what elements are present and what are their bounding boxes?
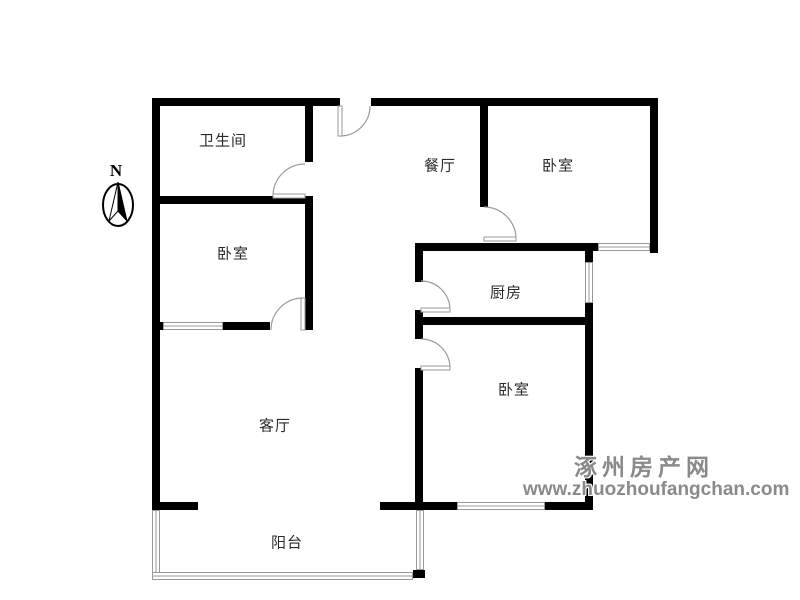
balcony-rail-left (153, 511, 160, 580)
floor-plan: N 卫生间 餐厅 卧室 卧室 厨房 卧室 客厅 阳台 涿州房产网 www.zhu… (0, 0, 800, 600)
wall-segment (223, 322, 270, 330)
room-label-bedroom-top-right: 卧室 (542, 155, 574, 176)
wall-segment (415, 243, 423, 282)
room-label-bedroom-bottom-right: 卧室 (498, 379, 530, 400)
north-label: N (110, 161, 122, 181)
wall-segment (305, 196, 313, 330)
wall-segment (415, 317, 593, 325)
window-top-right (599, 244, 650, 251)
window-bedroom-bottom (458, 503, 545, 510)
wall-segment (152, 322, 163, 330)
room-label-dining-room: 餐厅 (424, 155, 456, 176)
walls-layer (152, 98, 658, 578)
bedroom-top-right-door (484, 207, 516, 241)
room-label-living-room: 客厅 (259, 415, 291, 436)
window-bedroom-left (164, 323, 223, 330)
wall-segment (585, 251, 593, 262)
floor-plan-drawing (0, 0, 800, 600)
wall-segment (480, 98, 488, 207)
wall-segment (650, 98, 658, 253)
wall-segment (371, 98, 658, 106)
room-label-bedroom-left: 卧室 (217, 243, 249, 264)
kitchen-door (421, 281, 450, 312)
wall-segment (152, 502, 198, 510)
watermark: 涿州房产网 www.zhuozhoufangchan.com (523, 455, 765, 501)
wall-segment (152, 98, 160, 510)
watermark-site-url: www.zhuozhoufangchan.com (523, 480, 765, 501)
balcony-rail-bottom (153, 573, 413, 580)
wall-segment (413, 570, 425, 578)
room-label-bathroom: 卫生间 (199, 130, 247, 151)
wall-segment (545, 502, 593, 510)
wall-segment (415, 310, 423, 339)
bedroom-bottom-right-door (421, 339, 450, 370)
balcony-rail-right (417, 511, 424, 570)
watermark-site-name: 涿州房产网 (523, 455, 765, 480)
window-kitchen (586, 263, 593, 303)
bathroom-door (273, 164, 305, 198)
entry-door (338, 106, 370, 136)
wall-segment (305, 98, 313, 162)
wall-segment (415, 243, 598, 251)
wall-segment (415, 368, 423, 510)
room-label-kitchen: 厨房 (490, 282, 522, 303)
room-label-balcony: 阳台 (271, 532, 303, 553)
north-compass (103, 182, 133, 226)
wall-segment (380, 502, 457, 510)
bedroom-left-door (271, 298, 305, 330)
